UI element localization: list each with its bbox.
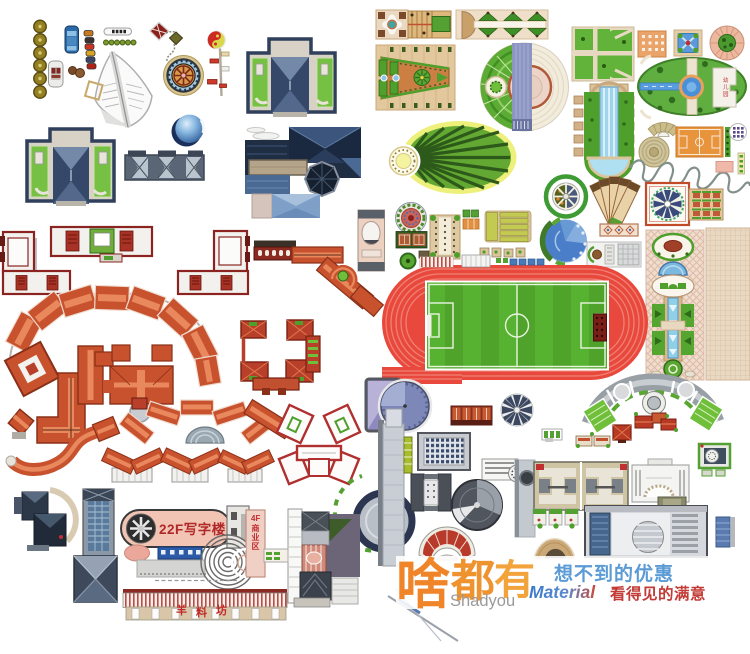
svg-text:Material: Material xyxy=(529,582,596,602)
svg-text:啥: 啥 xyxy=(396,555,450,615)
svg-text:区: 区 xyxy=(252,542,260,551)
svg-text:幼: 幼 xyxy=(723,76,729,84)
svg-text:业: 业 xyxy=(252,532,260,542)
svg-text:商: 商 xyxy=(252,523,260,533)
svg-text:儿: 儿 xyxy=(723,84,729,91)
svg-text:22F写字楼: 22F写字楼 xyxy=(159,521,226,537)
svg-text:园: 园 xyxy=(723,91,729,98)
svg-text:坊: 坊 xyxy=(216,603,227,617)
svg-text:4F: 4F xyxy=(251,514,260,523)
svg-text:羊: 羊 xyxy=(176,603,187,617)
svg-text:料: 料 xyxy=(196,605,207,619)
svg-text:看得见的满意: 看得见的满意 xyxy=(610,584,706,603)
svg-text:Shadyou: Shadyou xyxy=(450,592,515,610)
